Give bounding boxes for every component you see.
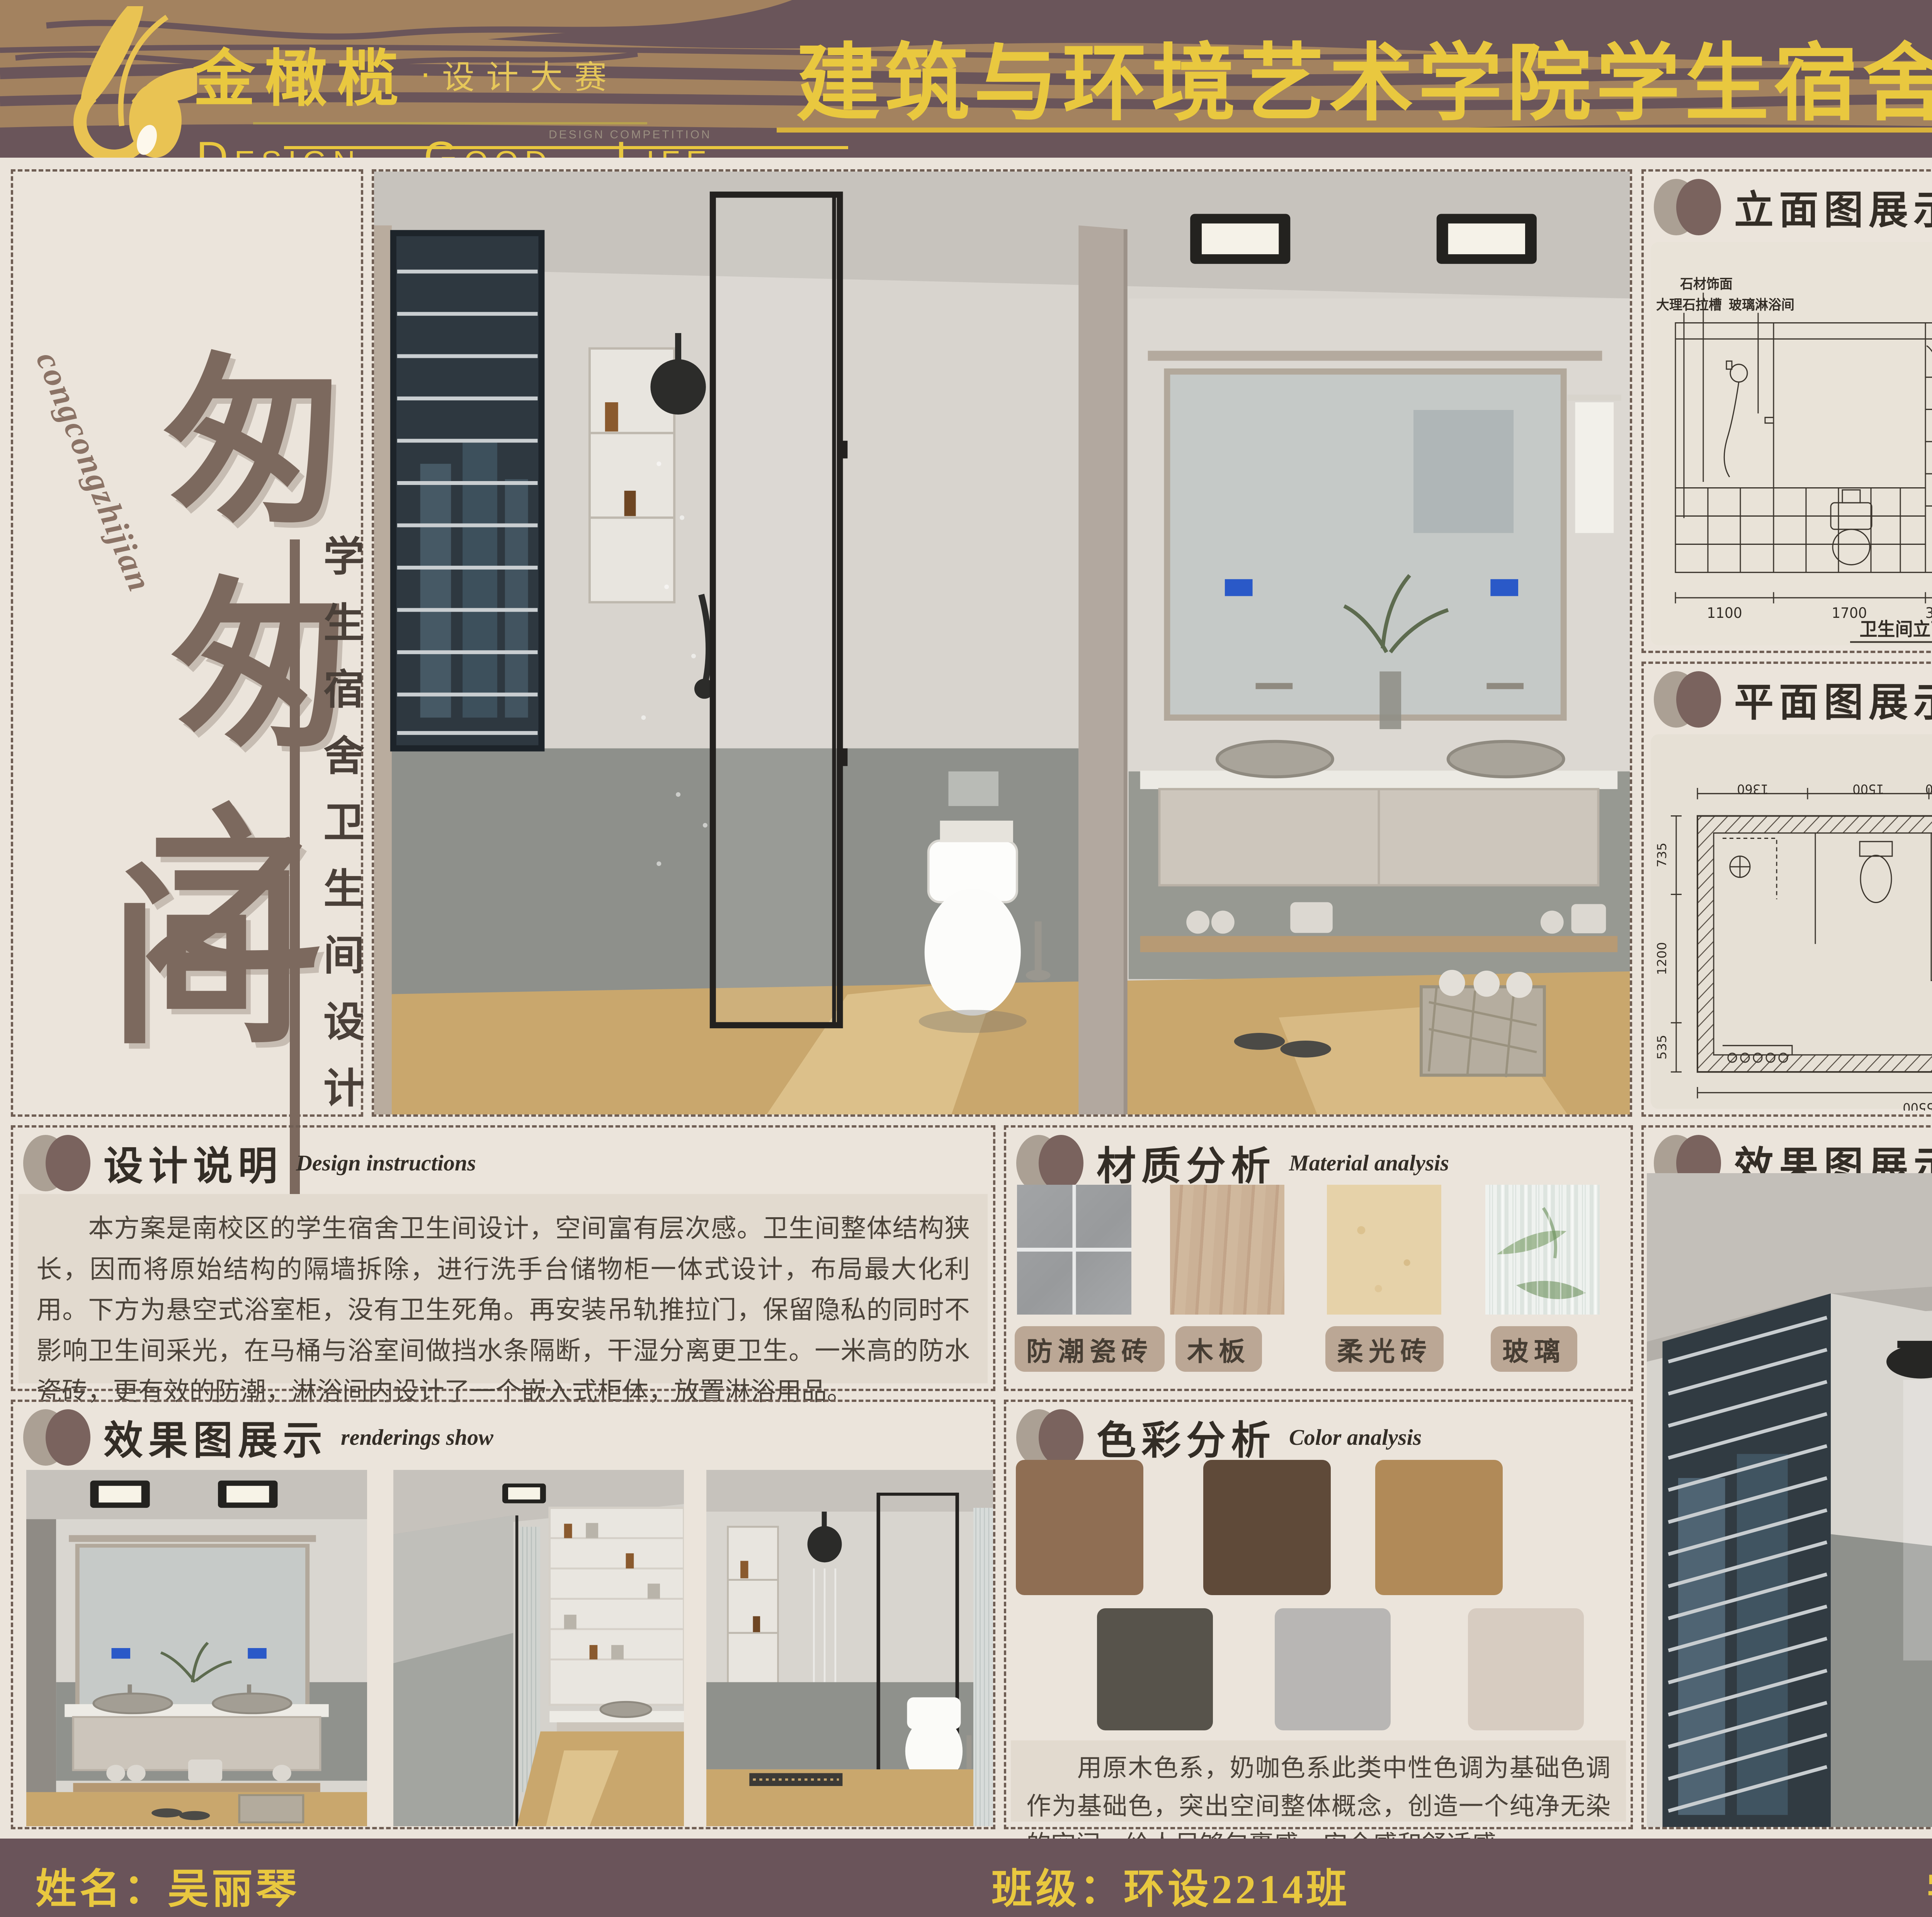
header-dots-icon [1016,1135,1083,1191]
student-class: 班级：环设2214班 [992,1856,1350,1915]
logo-slogan: Design. Good. Life [196,132,713,158]
logo-sub-cn: 设计大赛 [442,60,618,96]
svg-text:1500: 1500 [1852,781,1884,796]
color-header: 色彩分析 Color analysis [1016,1409,1422,1466]
render-corridor-image [393,1470,684,1826]
material-label: 玻璃 [1491,1326,1577,1372]
header-dots-icon [23,1135,90,1191]
svg-text:735: 735 [1655,842,1669,867]
poster: 金橄榄·设计大赛 DESIGN COMPETITION Design. Good… [0,0,1932,1917]
header-dots-icon [1654,179,1721,235]
banner: 金橄榄·设计大赛 DESIGN COMPETITION Design. Good… [0,0,1932,158]
material-label: 柔光砖 [1325,1326,1444,1372]
material-label: 防潮瓷砖 [1015,1326,1165,1372]
header-dots-icon [1016,1409,1083,1466]
render-shower-window-image [1647,1173,1932,1827]
design-instructions-text: 本方案是南校区的学生宿舍卫生间设计，空间富有层次感。卫生间整体结构狭长，因而将原… [19,1194,988,1383]
floor-plan-drawing: 1360 1500 200 2400 240 735 1200 535 1320… [1649,733,1932,1111]
section-title: 平面图展示 [1734,671,1932,728]
romanization-text: congcongzhijian [28,346,160,598]
color-swatch [1275,1608,1391,1730]
color-analysis-text: 用原木色系，奶咖色系此类中性色调为基础色调作为基础色，突出空间整体概念，创造一个… [1011,1740,1626,1822]
material-analysis-panel: 材质分析 Material analysis 防潮瓷砖 木板 柔光砖 玻璃 [1004,1125,1633,1391]
floor-plan-header: 平面图展示 Floor plan display [1654,671,1932,728]
material-label: 木板 [1175,1326,1262,1372]
main-render-panel [372,169,1632,1117]
color-swatch [1016,1460,1143,1595]
title-underline [777,128,1932,133]
header-dots-icon [1654,671,1721,728]
elevation-b-panel: 立面图展示 Elevation display [1641,169,1932,653]
section-subtitle: Design instructions [296,1150,476,1176]
student-name: 姓名：吴丽琴 [36,1856,300,1915]
svg-text:200: 200 [1925,781,1932,796]
student-id: 学号：202140857 [1927,1856,1932,1915]
color-swatch [1375,1460,1503,1595]
logo-dot: · [420,54,431,92]
section-subtitle: Material analysis [1289,1150,1449,1176]
svg-text:5500: 5500 [1903,1100,1932,1111]
title-char-4: 间 [110,863,303,1056]
renderings-left-header: 效果图展示 renderings show [23,1409,493,1466]
svg-text:1200: 1200 [1655,942,1669,975]
olive-logo-icon [15,6,197,158]
section-title: 效果图展示 [104,1409,328,1466]
header-dots-icon [23,1409,90,1466]
main-render-image [374,172,1630,1114]
renderings-left-panel: 效果图展示 renderings show [11,1400,995,1829]
design-instructions-panel: 设计说明 Design instructions 本方案是南校区的学生宿舍卫生间… [11,1125,995,1391]
color-swatch [1468,1608,1584,1730]
section-title: 色彩分析 [1097,1409,1276,1466]
material-swatch-glass [1485,1185,1600,1315]
color-swatch [1203,1460,1331,1595]
color-analysis-panel: 色彩分析 Color analysis 用原木色系，奶咖色系此类中性色调为基础色… [1004,1400,1633,1829]
logo-cn: 金橄榄 [193,45,409,114]
theme-title-panel: congcongzhijian 匆 匆 之 间 学生宿舍卫生间设计 [11,169,363,1117]
material-swatch-wood [1170,1185,1284,1315]
elevation-b-drawing: 石材饰面 大理石拉槽 玻璃淋浴间 铝扣板吊顶 木饰面立柜 防水瓷砖 大理石洗手台… [1649,240,1932,647]
footer-bar: 姓名：吴丽琴 班级：环设2214班 学号：202140857 [0,1839,1932,1917]
glass-leaf-decoration [1485,1185,1600,1315]
svg-text:1360: 1360 [1737,781,1768,796]
logo: 金橄榄·设计大赛 DESIGN COMPETITION Design. Good… [12,4,862,155]
design-header: 设计说明 Design instructions [23,1135,476,1191]
svg-text:卫生间立面图B: 卫生间立面图B [1860,619,1932,640]
material-header: 材质分析 Material analysis [1016,1135,1449,1191]
logo-text: 金橄榄·设计大赛 [193,29,618,118]
material-swatch-stone [1327,1185,1441,1315]
svg-text:石材饰面: 石材饰面 [1680,276,1733,292]
renderings-right-panel: 效果图展示 renderings show [1641,1125,1932,1829]
section-subtitle: Color analysis [1289,1424,1422,1450]
section-title: 立面图展示 [1734,179,1932,235]
svg-text:535: 535 [1655,1035,1669,1060]
render-shower-image [706,1470,993,1826]
title-char-1: 匆 [164,353,345,535]
section-subtitle: renderings show [341,1424,493,1450]
competition-title: 建筑与环境艺术学院学生宿舍卫生间设计大赛 [796,15,1932,137]
section-title: 设计说明 [104,1135,283,1191]
material-swatch-tile [1017,1185,1131,1315]
svg-text:玻璃淋浴间: 玻璃淋浴间 [1729,298,1794,313]
logo-rule [253,122,647,124]
elevation-b-header: 立面图展示 Elevation display [1654,179,1932,235]
svg-text:大理石拉槽: 大理石拉槽 [1656,298,1722,313]
color-swatch [1097,1608,1213,1730]
floor-plan-panel: 平面图展示 Floor plan display [1641,662,1932,1117]
section-title: 材质分析 [1097,1135,1276,1191]
svg-text:1100: 1100 [1707,604,1742,621]
render-vanity-image [26,1470,367,1826]
